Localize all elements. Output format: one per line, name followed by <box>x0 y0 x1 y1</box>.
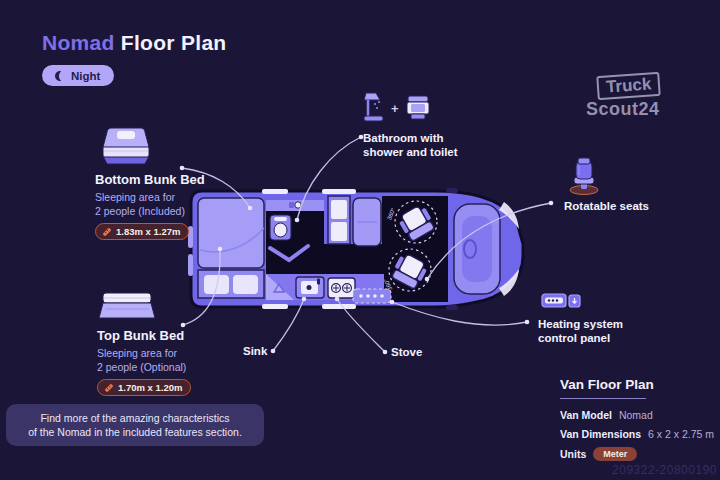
info-panel-divider <box>560 398 646 399</box>
plan-stove <box>328 278 355 298</box>
rear-door-handle <box>188 254 193 276</box>
night-mode-label: Night <box>71 70 100 82</box>
ruler-icon <box>104 383 114 393</box>
top-bunk-dimensions-badge: 1.70m x 1.20m <box>97 379 191 396</box>
truckscout24-logo: Truck Scout24 <box>586 74 660 118</box>
info-row-dimensions: Van Dimensions 6 x 2 x 2.75 m <box>560 428 715 440</box>
top-bunk-desc2: 2 people (Optional) <box>97 360 191 374</box>
top-bunk-callout: Top Bunk Bed Sleeping area for 2 people … <box>97 290 191 397</box>
rotatable-seats-label: Rotatable seats <box>564 199 649 213</box>
plan-sink <box>296 277 324 298</box>
logo-top-text: Truck <box>596 72 661 100</box>
heating-label-line2: control panel <box>538 331 623 345</box>
note-line1: Find more of the amazing characteristics <box>40 411 229 425</box>
van-dimensions-value: 6 x 2 x 2.75 m <box>648 428 714 440</box>
van-floor-plan: 360° 360° <box>186 188 528 310</box>
units-meter-badge[interactable]: Meter <box>593 447 637 461</box>
bottom-bunk-desc2: 2 people (Included) <box>95 204 205 218</box>
feature-note: Find more of the amazing characteristics… <box>6 404 264 446</box>
heating-label-line1: Heating system <box>538 317 623 331</box>
plan-toilet <box>270 215 291 240</box>
plan-bed <box>198 198 264 268</box>
van-window <box>322 189 356 194</box>
units-label: Units <box>560 448 586 460</box>
listing-id: 209322-20800190 <box>612 463 717 477</box>
top-bunk-dimensions: 1.70m x 1.20m <box>118 382 182 393</box>
night-mode-toggle[interactable]: Night <box>42 65 114 86</box>
bottom-bunk-title: Bottom Bunk Bed <box>95 172 205 187</box>
van-window <box>322 304 356 309</box>
plan-heating-panel <box>353 289 391 303</box>
logo-bottom-text: Scout24 <box>586 100 660 118</box>
van-window <box>262 304 288 309</box>
bottom-bunk-dimensions: 1.83m x 1.27m <box>116 226 180 237</box>
toilet-icon <box>405 94 431 122</box>
van-window <box>262 189 288 194</box>
plan-bench <box>353 198 381 246</box>
plan-fridge <box>328 196 350 244</box>
bathroom-label-line1: Bathroom with <box>363 131 458 145</box>
van-info-panel: Van Floor Plan Van Model Nomad Van Dimen… <box>560 377 715 468</box>
seat-icon <box>566 156 602 196</box>
van-model-label: Van Model <box>560 409 612 421</box>
sink-label: Sink <box>243 344 267 358</box>
page-title-accent: Nomad <box>42 31 115 54</box>
side-mirror <box>446 188 458 193</box>
info-panel-title: Van Floor Plan <box>560 377 715 392</box>
plan-vanity <box>266 200 324 211</box>
corridor-area <box>266 244 384 278</box>
floor-plan-infographic: Nomad Floor Plan Night Truck Scout24 <box>0 0 720 480</box>
bed-flat-icon <box>97 290 157 322</box>
rotatable-seats-callout: Rotatable seats <box>564 156 649 213</box>
page-title: Nomad Floor Plan <box>42 31 227 55</box>
plus-sign: + <box>391 101 399 122</box>
bottom-bunk-callout: Bottom Bunk Bed Sleeping area for 2 peop… <box>95 120 205 241</box>
page-title-rest: Floor Plan <box>121 31 227 54</box>
top-bunk-title: Top Bunk Bed <box>97 328 191 343</box>
bathroom-label-line2: shower and toilet <box>363 145 458 159</box>
heating-callout: Heating system control panel <box>541 293 623 345</box>
side-mirror <box>446 305 458 310</box>
stove-label: Stove <box>391 345 422 359</box>
bed-icon <box>95 120 157 166</box>
note-line2: of the Nomad in the included features se… <box>28 425 242 439</box>
heating-panel-icon <box>541 293 581 309</box>
plan-wardrobe <box>198 270 264 298</box>
bottom-bunk-desc1: Sleeping area for <box>95 190 205 204</box>
ruler-icon <box>102 227 112 237</box>
info-row-model: Van Model Nomad <box>560 409 715 421</box>
top-bunk-desc1: Sleeping area for <box>97 346 191 360</box>
van-model-value: Nomad <box>619 409 653 421</box>
bathroom-callout: + Bathroom with shower and toilet <box>363 90 458 159</box>
shower-icon <box>363 90 385 122</box>
info-row-units: Units Meter <box>560 447 715 461</box>
van-dimensions-label: Van Dimensions <box>560 428 641 440</box>
bottom-bunk-dimensions-badge: 1.83m x 1.27m <box>95 223 189 240</box>
moon-icon <box>53 70 65 82</box>
